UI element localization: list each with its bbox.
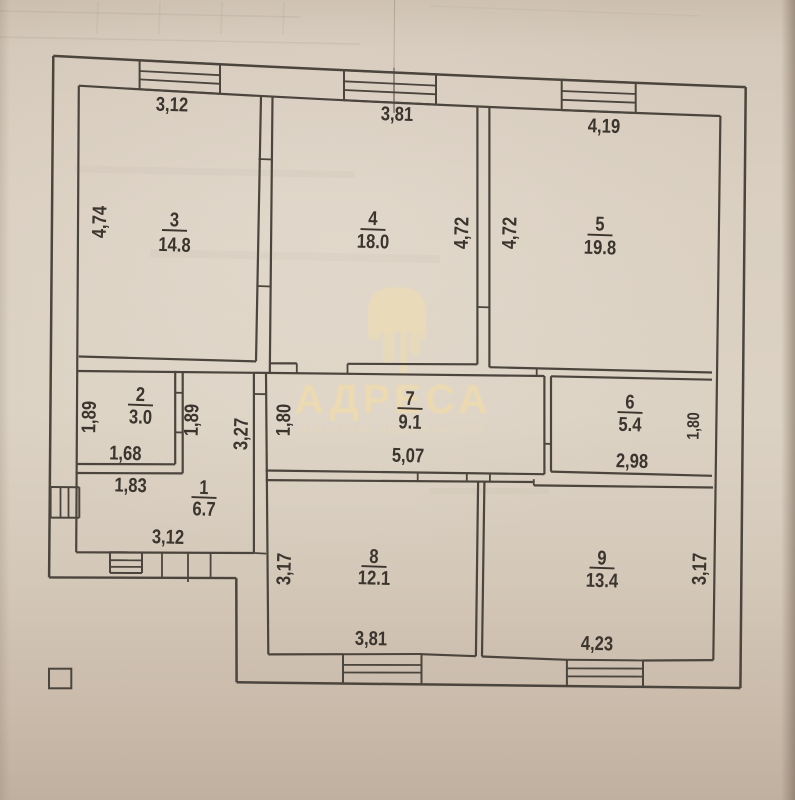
svg-text:5.4: 5.4: [618, 412, 642, 436]
svg-text:4,23: 4,23: [581, 631, 614, 655]
svg-text:3,17: 3,17: [272, 553, 296, 586]
svg-text:АДРЕСА: АДРЕСА: [294, 376, 491, 422]
svg-text:5: 5: [595, 212, 605, 235]
svg-text:3,17: 3,17: [687, 553, 711, 586]
svg-text:9: 9: [597, 546, 607, 569]
svg-text:5,07: 5,07: [392, 443, 425, 467]
svg-text:12.1: 12.1: [358, 566, 391, 590]
svg-text:14.8: 14.8: [158, 232, 191, 256]
svg-text:13.4: 13.4: [586, 568, 620, 592]
svg-text:2: 2: [136, 382, 146, 405]
svg-text:4,74: 4,74: [87, 205, 111, 239]
svg-text:6: 6: [625, 390, 635, 413]
svg-text:18.0: 18.0: [357, 229, 390, 253]
svg-text:4: 4: [368, 206, 379, 229]
svg-text:7: 7: [405, 386, 415, 409]
svg-text:3: 3: [170, 208, 180, 231]
svg-text:3,27: 3,27: [229, 418, 253, 451]
svg-text:4,72: 4,72: [449, 217, 473, 250]
svg-text:1,89: 1,89: [77, 401, 101, 434]
svg-text:1,83: 1,83: [114, 473, 147, 497]
svg-text:3,81: 3,81: [381, 102, 414, 126]
svg-text:3.0: 3.0: [129, 405, 153, 429]
svg-text:1,80: 1,80: [271, 404, 295, 437]
svg-text:3,81: 3,81: [355, 626, 388, 650]
svg-text:4,72: 4,72: [497, 217, 521, 250]
svg-text:8: 8: [369, 544, 379, 567]
svg-text:19.8: 19.8: [584, 235, 617, 259]
svg-text:1,89: 1,89: [179, 404, 203, 437]
svg-text:АГЕНТСТВО НЕДВИЖИМОСТИ: АГЕНТСТВО НЕДВИЖИМОСТИ: [302, 425, 485, 435]
svg-text:3,12: 3,12: [152, 525, 185, 549]
svg-text:4,19: 4,19: [588, 114, 621, 138]
svg-text:6.7: 6.7: [192, 497, 216, 521]
svg-text:1,80: 1,80: [684, 412, 703, 440]
svg-text:3,12: 3,12: [156, 92, 189, 116]
svg-text:2,98: 2,98: [616, 449, 649, 473]
svg-text:1: 1: [199, 475, 209, 498]
svg-text:1,68: 1,68: [109, 441, 142, 465]
svg-text:9.1: 9.1: [398, 410, 422, 434]
